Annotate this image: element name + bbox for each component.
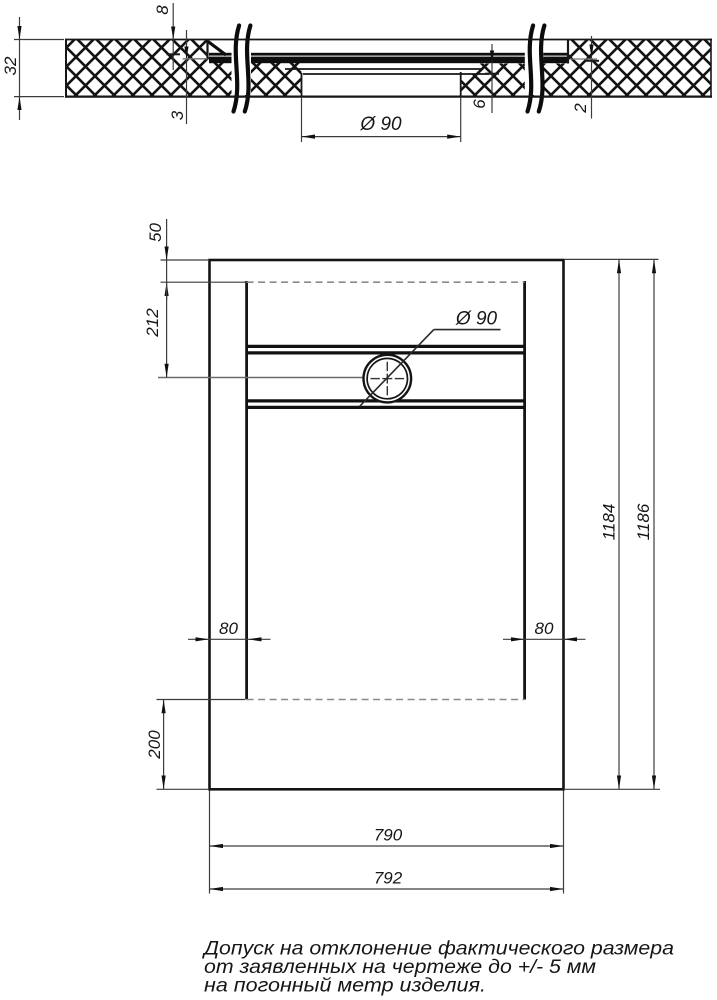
svg-text:8: 8 bbox=[153, 5, 172, 15]
svg-text:80: 80 bbox=[535, 619, 554, 638]
svg-text:50: 50 bbox=[146, 223, 165, 242]
svg-text:32: 32 bbox=[1, 56, 20, 75]
svg-text:80: 80 bbox=[219, 619, 238, 638]
svg-text:Ø 90: Ø 90 bbox=[455, 309, 498, 330]
svg-text:1186: 1186 bbox=[634, 503, 653, 540]
svg-text:212: 212 bbox=[143, 308, 162, 338]
svg-text:6: 6 bbox=[470, 99, 489, 109]
svg-text:на погонный метр изделия.: на погонный метр изделия. bbox=[204, 975, 486, 997]
svg-text:790: 790 bbox=[374, 826, 403, 845]
svg-text:1184: 1184 bbox=[599, 504, 618, 541]
svg-text:200: 200 bbox=[145, 730, 164, 760]
svg-text:Ø 90: Ø 90 bbox=[359, 114, 402, 135]
svg-text:3: 3 bbox=[168, 110, 187, 120]
svg-text:2: 2 bbox=[571, 103, 590, 114]
svg-text:792: 792 bbox=[374, 869, 403, 888]
